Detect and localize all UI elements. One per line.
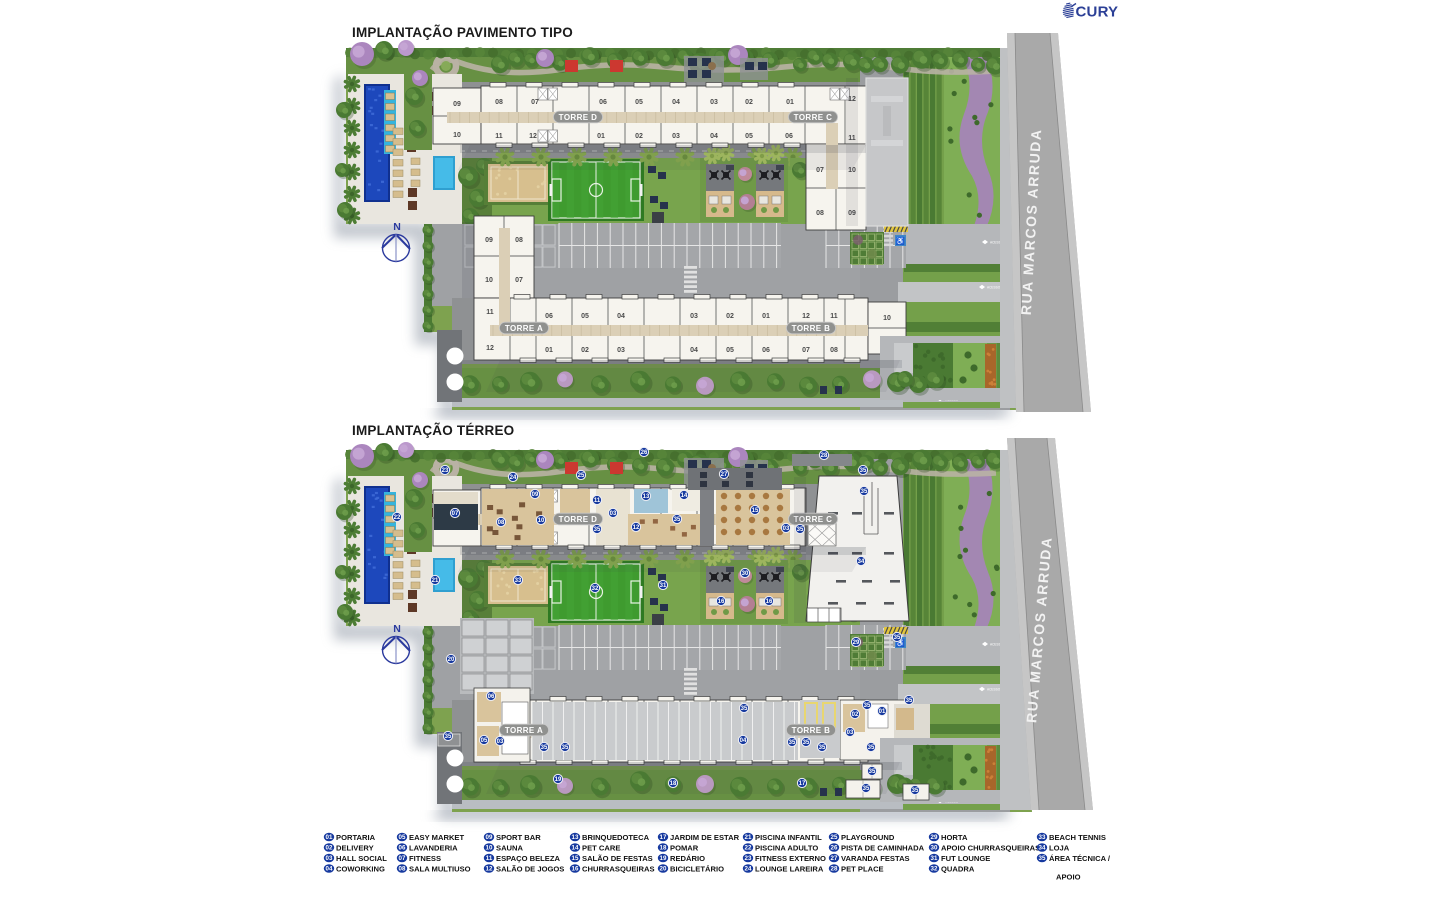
svg-text:23: 23 <box>442 468 449 474</box>
svg-text:09: 09 <box>485 237 493 244</box>
svg-text:01: 01 <box>326 834 333 841</box>
svg-text:08: 08 <box>816 210 824 217</box>
svg-text:24: 24 <box>510 475 517 481</box>
svg-text:07: 07 <box>515 277 523 284</box>
svg-text:35: 35 <box>789 740 796 746</box>
svg-text:35: 35 <box>869 769 876 775</box>
svg-text:01: 01 <box>786 99 794 106</box>
svg-text:19: 19 <box>660 855 667 862</box>
svg-text:SALÃO DE JOGOS: SALÃO DE JOGOS <box>496 864 564 873</box>
svg-text:03: 03 <box>326 855 333 862</box>
svg-text:♿: ♿ <box>896 237 905 246</box>
svg-text:26: 26 <box>831 845 838 852</box>
svg-text:PLAYGROUND: PLAYGROUND <box>841 833 895 842</box>
svg-text:PISTA DE CAMINHADA: PISTA DE CAMINHADA <box>841 843 925 852</box>
svg-text:35: 35 <box>861 489 868 495</box>
svg-text:11: 11 <box>486 855 493 862</box>
svg-text:SAUNA: SAUNA <box>496 843 524 852</box>
svg-text:LOJA: LOJA <box>1049 843 1070 852</box>
svg-text:SALÃO DE FESTAS: SALÃO DE FESTAS <box>582 854 653 863</box>
svg-text:SPORT BAR: SPORT BAR <box>496 833 541 842</box>
svg-text:08: 08 <box>830 347 838 354</box>
svg-text:32: 32 <box>931 866 938 873</box>
svg-text:11: 11 <box>495 133 503 140</box>
svg-text:04: 04 <box>617 313 625 320</box>
svg-text:35: 35 <box>868 745 875 751</box>
svg-text:03: 03 <box>783 526 790 532</box>
svg-text:35: 35 <box>860 468 867 474</box>
svg-text:19: 19 <box>555 777 562 783</box>
svg-text:16: 16 <box>572 866 579 873</box>
svg-text:04: 04 <box>740 738 747 744</box>
svg-text:12: 12 <box>802 313 810 320</box>
svg-text:26: 26 <box>641 450 648 456</box>
svg-text:TORRE A: TORRE A <box>505 324 543 333</box>
svg-text:PORTARIA: PORTARIA <box>336 833 376 842</box>
svg-text:TORRE D: TORRE D <box>559 515 598 524</box>
svg-text:LAVANDERIA: LAVANDERIA <box>409 843 458 852</box>
svg-text:IMPLANTAÇÃO TÉRREO: IMPLANTAÇÃO TÉRREO <box>352 423 514 438</box>
svg-text:02: 02 <box>581 347 589 354</box>
svg-text:30: 30 <box>931 845 938 852</box>
svg-text:01: 01 <box>545 347 553 354</box>
svg-text:27: 27 <box>831 855 838 862</box>
svg-text:35: 35 <box>741 706 748 712</box>
svg-text:10: 10 <box>486 845 493 852</box>
svg-text:35: 35 <box>894 635 901 641</box>
svg-text:09: 09 <box>532 492 539 498</box>
svg-text:04: 04 <box>326 866 333 873</box>
svg-text:14: 14 <box>681 493 688 499</box>
svg-text:BEACH TENNIS: BEACH TENNIS <box>1049 833 1106 842</box>
svg-text:03: 03 <box>847 730 854 736</box>
svg-text:17: 17 <box>660 834 667 841</box>
svg-text:01: 01 <box>879 709 886 715</box>
svg-text:FITNESS: FITNESS <box>409 854 441 863</box>
svg-text:02: 02 <box>852 712 859 718</box>
svg-text:09: 09 <box>453 101 461 108</box>
svg-text:HALL SOCIAL: HALL SOCIAL <box>336 854 387 863</box>
svg-text:PISCINA INFANTIL: PISCINA INFANTIL <box>755 833 822 842</box>
svg-text:SALA MULTIUSO: SALA MULTIUSO <box>409 864 471 873</box>
svg-text:33: 33 <box>1039 834 1046 841</box>
svg-text:02: 02 <box>726 313 734 320</box>
svg-text:05: 05 <box>481 738 488 744</box>
svg-text:30: 30 <box>742 571 749 577</box>
svg-text:35: 35 <box>562 745 569 751</box>
svg-text:27: 27 <box>721 472 728 478</box>
svg-text:REDÁRIO: REDÁRIO <box>670 854 705 863</box>
svg-text:35: 35 <box>803 740 810 746</box>
svg-text:28: 28 <box>821 453 828 459</box>
svg-text:34: 34 <box>858 559 865 565</box>
svg-text:21: 21 <box>745 834 752 841</box>
svg-text:03: 03 <box>690 313 698 320</box>
svg-text:08: 08 <box>495 99 503 106</box>
svg-text:EASY MARKET: EASY MARKET <box>409 833 464 842</box>
svg-text:06: 06 <box>762 347 770 354</box>
svg-text:JARDIM DE ESTAR: JARDIM DE ESTAR <box>670 833 740 842</box>
svg-text:06: 06 <box>545 313 553 320</box>
svg-text:22: 22 <box>394 515 401 521</box>
svg-text:TORRE A: TORRE A <box>505 726 543 735</box>
svg-text:11: 11 <box>486 309 494 316</box>
svg-text:TORRE D: TORRE D <box>559 113 598 122</box>
svg-text:10: 10 <box>485 277 493 284</box>
svg-text:N: N <box>393 623 401 635</box>
svg-text:ESPAÇO BELEZA: ESPAÇO BELEZA <box>496 854 561 863</box>
svg-text:14: 14 <box>572 845 579 852</box>
svg-text:10: 10 <box>538 518 545 524</box>
svg-text:07: 07 <box>802 347 810 354</box>
svg-text:16: 16 <box>766 599 773 605</box>
svg-text:23: 23 <box>745 855 752 862</box>
svg-text:33: 33 <box>515 578 522 584</box>
svg-text:35: 35 <box>906 698 913 704</box>
svg-text:35: 35 <box>819 745 826 751</box>
svg-text:QUADRA: QUADRA <box>941 864 975 873</box>
svg-text:22: 22 <box>745 845 752 852</box>
svg-text:01: 01 <box>597 133 605 140</box>
svg-text:11: 11 <box>830 313 838 320</box>
svg-text:06: 06 <box>399 845 406 852</box>
svg-text:35: 35 <box>797 527 804 533</box>
svg-text:ACESSO: ACESSO <box>987 688 1001 692</box>
svg-text:IMPLANTAÇÃO PAVIMENTO TIPO: IMPLANTAÇÃO PAVIMENTO TIPO <box>352 25 573 40</box>
svg-text:POMAR: POMAR <box>670 843 699 852</box>
svg-text:03: 03 <box>672 133 680 140</box>
svg-text:LOUNGE LAREIRA: LOUNGE LAREIRA <box>755 864 824 873</box>
svg-text:02: 02 <box>326 845 333 852</box>
svg-text:CHURRASQUEIRAS: CHURRASQUEIRAS <box>582 864 655 873</box>
svg-text:35: 35 <box>674 517 681 523</box>
svg-text:BRINQUEDOTECA: BRINQUEDOTECA <box>582 833 650 842</box>
svg-text:08: 08 <box>498 520 505 526</box>
svg-text:FUT LOUNGE: FUT LOUNGE <box>941 854 990 863</box>
svg-text:TORRE B: TORRE B <box>792 324 831 333</box>
svg-text:05: 05 <box>635 99 643 106</box>
svg-text:17: 17 <box>799 781 806 787</box>
svg-text:32: 32 <box>592 586 599 592</box>
svg-text:12: 12 <box>486 345 494 352</box>
svg-text:16: 16 <box>718 599 725 605</box>
svg-text:25: 25 <box>578 473 585 479</box>
svg-text:APOIO: APOIO <box>1056 872 1081 881</box>
svg-text:01: 01 <box>762 313 770 320</box>
svg-text:ÁREA TÉCNICA /: ÁREA TÉCNICA / <box>1049 854 1111 863</box>
svg-text:04: 04 <box>672 99 680 106</box>
svg-text:03: 03 <box>710 99 718 106</box>
svg-text:CURY: CURY <box>1076 4 1119 21</box>
svg-text:07: 07 <box>399 855 406 862</box>
svg-text:02: 02 <box>635 133 643 140</box>
svg-text:15: 15 <box>752 508 759 514</box>
svg-text:13: 13 <box>643 494 650 500</box>
svg-text:08: 08 <box>399 866 406 873</box>
svg-text:35: 35 <box>594 527 601 533</box>
svg-text:35: 35 <box>541 745 548 751</box>
svg-text:06: 06 <box>488 694 495 700</box>
svg-text:35: 35 <box>1039 855 1046 862</box>
svg-text:35: 35 <box>912 788 919 794</box>
svg-text:29: 29 <box>931 834 938 841</box>
svg-text:03: 03 <box>617 347 625 354</box>
svg-text:BICICLETÁRIO: BICICLETÁRIO <box>670 864 724 873</box>
svg-text:COWORKING: COWORKING <box>336 864 385 873</box>
svg-text:24: 24 <box>745 866 752 873</box>
svg-text:20: 20 <box>448 657 455 663</box>
svg-text:12: 12 <box>633 525 640 531</box>
svg-text:21: 21 <box>432 578 439 584</box>
svg-text:07: 07 <box>531 99 539 106</box>
svg-text:02: 02 <box>745 99 753 106</box>
svg-text:05: 05 <box>745 133 753 140</box>
svg-text:APOIO CHURRASQUEIRAS: APOIO CHURRASQUEIRAS <box>941 843 1040 852</box>
svg-text:05: 05 <box>581 313 589 320</box>
svg-text:05: 05 <box>726 347 734 354</box>
svg-text:29: 29 <box>853 640 860 646</box>
svg-text:18: 18 <box>660 845 667 852</box>
svg-text:31: 31 <box>660 583 667 589</box>
svg-text:PET PLACE: PET PLACE <box>841 864 884 873</box>
svg-text:N: N <box>393 221 401 233</box>
svg-text:ACESSO: ACESSO <box>987 286 1001 290</box>
svg-text:28: 28 <box>831 866 838 873</box>
svg-text:35: 35 <box>445 734 452 740</box>
svg-text:31: 31 <box>931 855 938 862</box>
svg-text:10: 10 <box>453 132 461 139</box>
svg-text:25: 25 <box>831 834 838 841</box>
svg-text:TORRE C: TORRE C <box>794 113 833 122</box>
svg-text:PET CARE: PET CARE <box>582 843 620 852</box>
svg-text:HORTA: HORTA <box>941 833 968 842</box>
svg-text:06: 06 <box>599 99 607 106</box>
svg-text:12: 12 <box>486 866 493 873</box>
svg-text:15: 15 <box>572 855 579 862</box>
svg-text:FITNESS EXTERNO: FITNESS EXTERNO <box>755 854 826 863</box>
svg-text:DELIVERY: DELIVERY <box>336 843 374 852</box>
svg-text:PISCINA ADULTO: PISCINA ADULTO <box>755 843 818 852</box>
svg-text:04: 04 <box>690 347 698 354</box>
svg-text:35: 35 <box>864 703 871 709</box>
svg-text:34: 34 <box>1039 845 1046 852</box>
svg-text:03: 03 <box>497 739 504 745</box>
svg-text:08: 08 <box>515 237 523 244</box>
svg-text:11: 11 <box>594 498 601 504</box>
svg-text:05: 05 <box>399 834 406 841</box>
svg-text:35: 35 <box>863 786 870 792</box>
svg-text:09: 09 <box>486 834 493 841</box>
svg-text:13: 13 <box>572 834 579 841</box>
svg-text:03: 03 <box>610 511 617 517</box>
svg-text:TORRE B: TORRE B <box>792 726 831 735</box>
svg-text:06: 06 <box>785 133 793 140</box>
svg-text:18: 18 <box>670 781 677 787</box>
svg-text:20: 20 <box>660 866 667 873</box>
svg-text:04: 04 <box>710 133 718 140</box>
svg-text:07: 07 <box>452 511 459 517</box>
svg-text:10: 10 <box>883 315 891 322</box>
svg-text:12: 12 <box>529 133 537 140</box>
svg-text:VARANDA FESTAS: VARANDA FESTAS <box>841 854 910 863</box>
